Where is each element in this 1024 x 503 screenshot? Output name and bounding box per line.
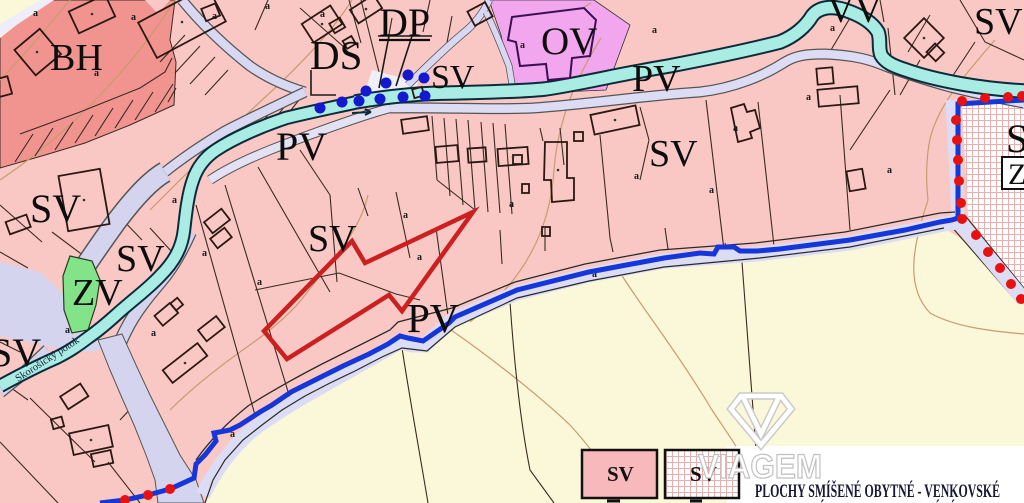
svg-text:a: a	[417, 252, 422, 263]
svg-text:a: a	[509, 199, 514, 210]
svg-text:PV: PV	[407, 295, 460, 341]
svg-text:PV: PV	[632, 58, 681, 100]
svg-text:SV: SV	[431, 59, 475, 96]
svg-text:VV: VV	[827, 0, 882, 31]
svg-text:SV: SV	[649, 133, 698, 175]
svg-text:a: a	[151, 328, 156, 339]
svg-text:SV: SV	[1006, 116, 1024, 161]
svg-text:SV: SV	[974, 1, 1023, 43]
svg-text:SV: SV	[30, 186, 81, 231]
svg-text:a: a	[202, 248, 207, 259]
svg-text:a: a	[709, 185, 714, 196]
svg-text:a: a	[65, 325, 70, 336]
svg-text:PV: PV	[276, 124, 327, 169]
svg-text:a: a	[131, 12, 136, 23]
svg-text:a: a	[172, 195, 177, 206]
svg-text:Z: Z	[1008, 158, 1024, 191]
svg-text:VIAGEM: VIAGEM	[698, 448, 822, 486]
svg-text:a: a	[806, 92, 811, 103]
svg-text:a: a	[733, 123, 738, 134]
svg-text:SV: SV	[308, 218, 357, 260]
svg-text:PLOCHY VÝROBY A SKLADOVÁNÍ: PLOCHY VÝROBY A SKLADOVÁNÍ	[755, 499, 955, 503]
svg-text:a: a	[33, 8, 38, 19]
svg-text:DS: DS	[310, 32, 362, 78]
svg-text:a: a	[265, 1, 270, 12]
svg-text:a: a	[320, 9, 325, 20]
svg-text:BH: BH	[50, 37, 103, 79]
svg-text:SV: SV	[607, 462, 634, 486]
svg-text:a: a	[652, 25, 657, 36]
svg-text:a: a	[212, 11, 217, 22]
svg-text:DP: DP	[379, 0, 430, 45]
svg-text:ZV: ZV	[72, 272, 123, 314]
svg-text:a: a	[887, 165, 892, 176]
svg-text:a: a	[634, 171, 639, 182]
svg-text:a: a	[520, 40, 525, 51]
svg-text:a: a	[403, 210, 408, 221]
svg-text:a: a	[257, 277, 262, 288]
svg-text:SV: SV	[116, 238, 165, 280]
svg-text:OV: OV	[541, 20, 597, 63]
